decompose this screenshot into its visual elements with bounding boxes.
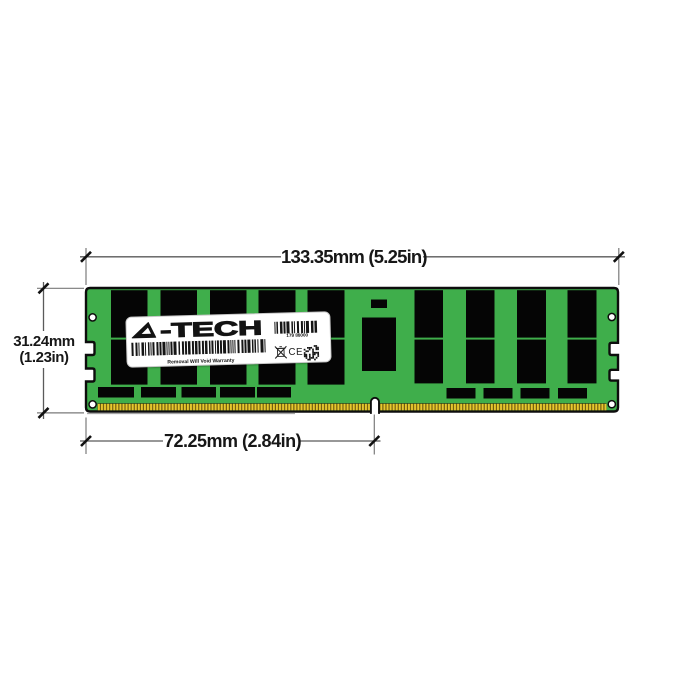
svg-text:179 88000: 179 88000 bbox=[286, 332, 308, 338]
svg-text:-TECH: -TECH bbox=[160, 317, 263, 342]
svg-text:CE: CE bbox=[288, 347, 303, 358]
svg-text:Removal Will Void Warranty: Removal Will Void Warranty bbox=[167, 358, 234, 366]
